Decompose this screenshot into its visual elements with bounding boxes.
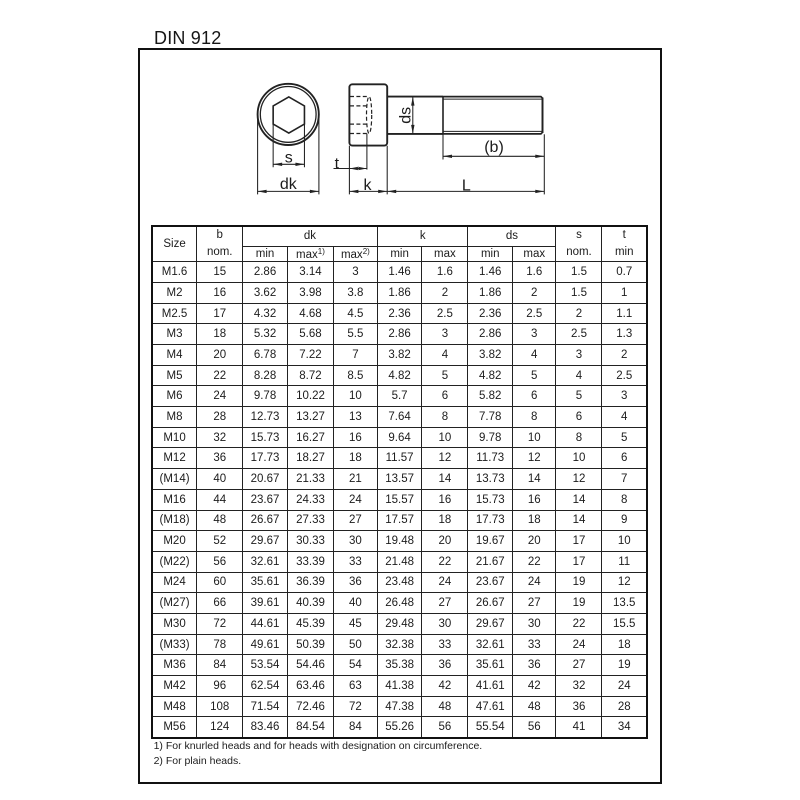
svg-text:s: s xyxy=(285,149,293,166)
svg-text:L: L xyxy=(462,178,471,195)
svg-text:(b): (b) xyxy=(484,139,504,156)
svg-text:t: t xyxy=(335,155,340,172)
svg-text:dk: dk xyxy=(280,176,298,193)
svg-text:ds: ds xyxy=(397,107,414,124)
svg-text:k: k xyxy=(364,177,373,194)
